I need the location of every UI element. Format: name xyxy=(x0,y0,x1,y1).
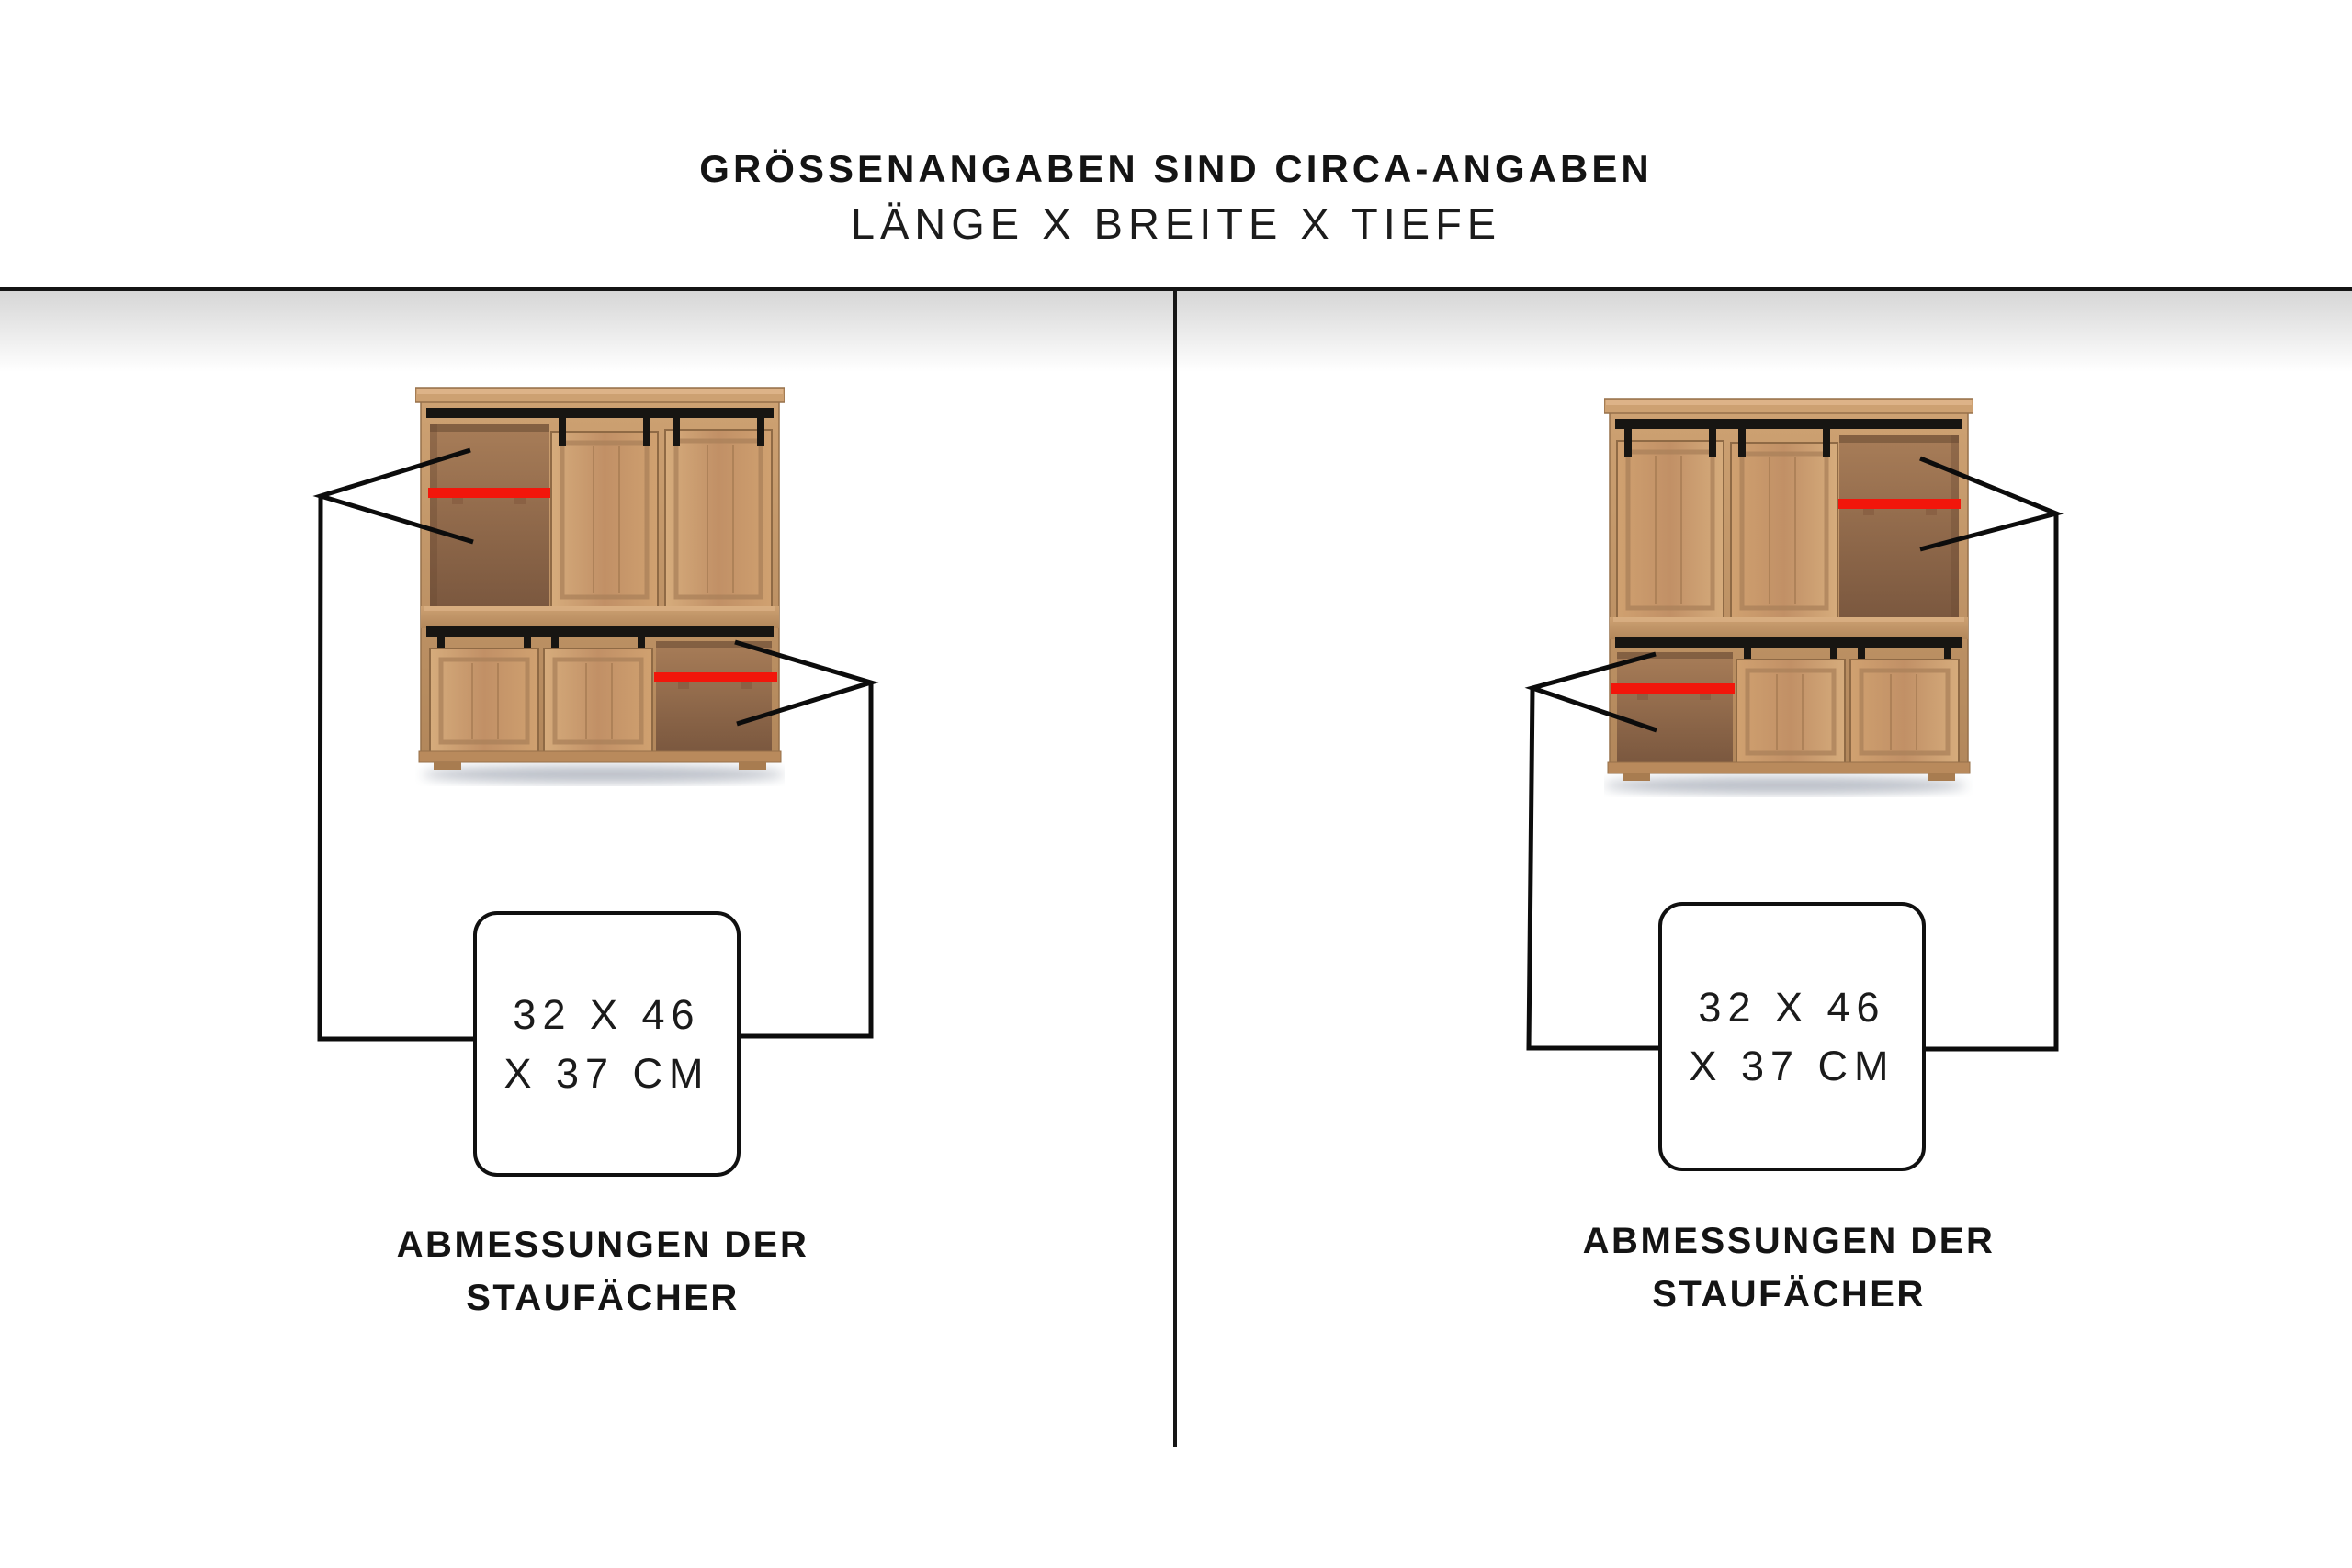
dimension-text-line2: X 37 CM xyxy=(1689,1037,1894,1096)
infographic-canvas: GRÖSSENANGABEN SIND CIRCA-ANGABEN LÄNGE … xyxy=(0,0,2352,1568)
dimension-text-line1: 32 X 46 xyxy=(513,986,700,1044)
dimension-callout-box-left: 32 X 46 X 37 CM xyxy=(473,911,741,1177)
cabinet-image-left xyxy=(415,382,785,786)
caption-left: ABMESSUNGEN DER STAUFÄCHER xyxy=(345,1218,860,1325)
caption-right: ABMESSUNGEN DER STAUFÄCHER xyxy=(1532,1214,2046,1321)
caption-line2: STAUFÄCHER xyxy=(1532,1268,2046,1321)
cabinet-image-right xyxy=(1604,393,1973,797)
caption-line2: STAUFÄCHER xyxy=(345,1271,860,1325)
dimension-callout-box-right: 32 X 46 X 37 CM xyxy=(1658,902,1926,1171)
page-subtitle: LÄNGE X BREITE X TIEFE xyxy=(0,198,2352,249)
caption-line1: ABMESSUNGEN DER xyxy=(1532,1214,2046,1268)
panel-divider-line xyxy=(1173,289,1177,1447)
page-title: GRÖSSENANGABEN SIND CIRCA-ANGABEN xyxy=(0,147,2352,191)
dimension-text-line2: X 37 CM xyxy=(503,1044,709,1103)
dimension-text-line1: 32 X 46 xyxy=(1698,978,1885,1037)
caption-line1: ABMESSUNGEN DER xyxy=(345,1218,860,1271)
